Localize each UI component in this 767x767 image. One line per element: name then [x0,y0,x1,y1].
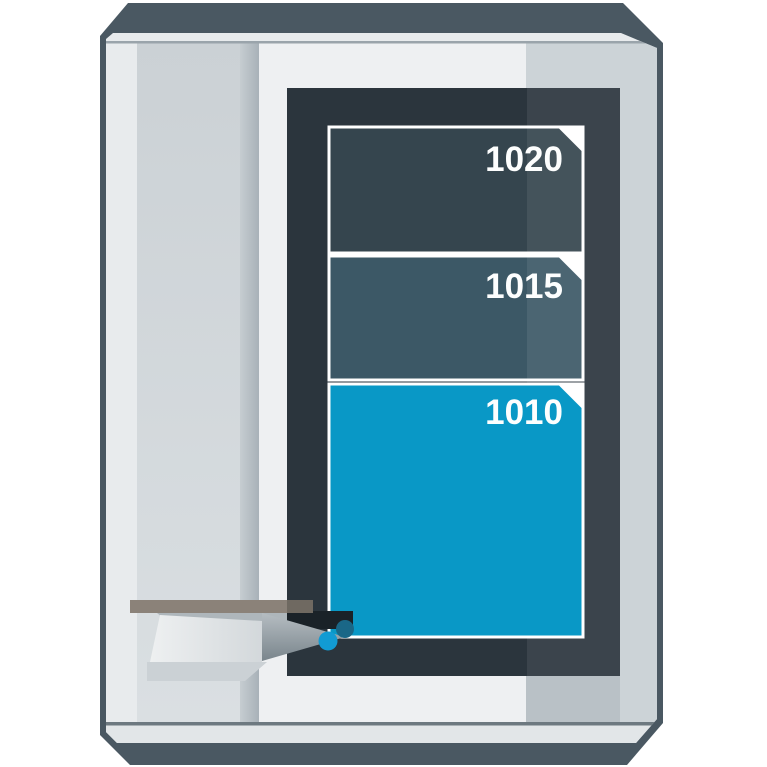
nozzle-holder-block [150,615,262,662]
panel-1010-label: 1010 [363,395,563,431]
coolant-droplet-back [336,620,354,638]
machine-illustration [0,0,767,767]
panel-1020-label: 1020 [363,142,563,178]
bottom-groove-line [106,722,657,726]
coolant-droplet-front [319,632,338,651]
nozzle-arm-end [287,600,313,613]
nozzle-arm [130,600,313,613]
panel-1015-label: 1015 [363,269,563,305]
illustration-canvas: 1020 1015 1010 [0,0,767,767]
top-groove-line [106,41,657,44]
door-bottom-panel [526,676,620,722]
bottom-trim-band [106,726,657,744]
